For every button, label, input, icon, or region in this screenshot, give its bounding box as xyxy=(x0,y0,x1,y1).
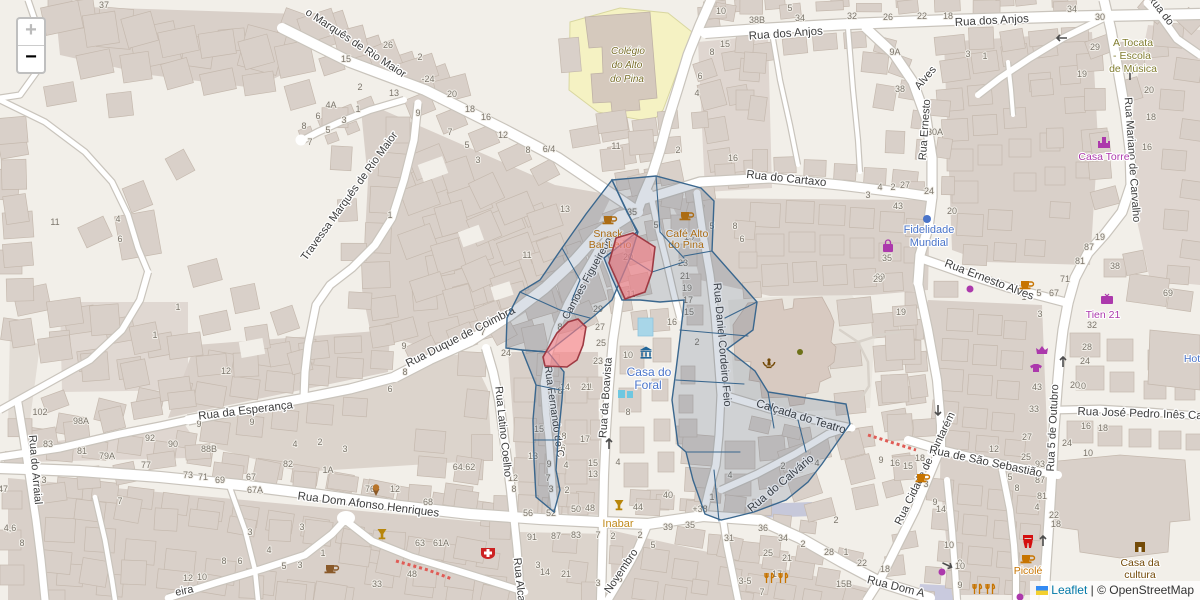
svg-text:19: 19 xyxy=(896,307,906,317)
svg-text:1: 1 xyxy=(320,548,325,558)
svg-text:25: 25 xyxy=(763,548,773,558)
svg-text:- Escola: - Escola xyxy=(1113,50,1151,62)
svg-text:Picolé: Picolé xyxy=(1014,565,1043,577)
svg-text:29: 29 xyxy=(873,274,883,284)
svg-text:6: 6 xyxy=(315,111,320,121)
svg-text:25: 25 xyxy=(596,338,606,348)
svg-text:34: 34 xyxy=(778,533,788,543)
svg-text:10: 10 xyxy=(1083,448,1093,458)
svg-text:20: 20 xyxy=(1070,380,1080,390)
svg-text:83: 83 xyxy=(571,530,581,540)
svg-text:3-5: 3-5 xyxy=(738,576,751,586)
svg-text:28: 28 xyxy=(824,547,834,557)
svg-text:38: 38 xyxy=(1110,261,1120,271)
svg-text:3: 3 xyxy=(342,444,347,454)
svg-text:4: 4 xyxy=(694,88,699,98)
svg-text:18: 18 xyxy=(1146,112,1156,122)
svg-text:4: 4 xyxy=(292,439,297,449)
svg-text:43: 43 xyxy=(1032,382,1042,392)
svg-text:Casa da: Casa da xyxy=(1120,557,1159,569)
svg-text:6: 6 xyxy=(697,71,702,81)
svg-text:25: 25 xyxy=(1021,452,1031,462)
svg-text:do Alto: do Alto xyxy=(612,60,643,71)
svg-text:6: 6 xyxy=(387,384,392,394)
svg-text:28: 28 xyxy=(1082,342,1092,352)
svg-text:13: 13 xyxy=(560,204,570,214)
svg-text:38: 38 xyxy=(895,84,905,94)
svg-text:7: 7 xyxy=(307,137,312,147)
svg-text:48: 48 xyxy=(585,503,595,513)
svg-text:8: 8 xyxy=(625,407,630,417)
svg-text:83: 83 xyxy=(43,439,53,449)
svg-text:27: 27 xyxy=(900,180,910,190)
svg-text:Casa do: Casa do xyxy=(627,365,672,379)
svg-text:3: 3 xyxy=(247,527,252,537)
svg-text:4: 4 xyxy=(1034,502,1039,512)
svg-text:81: 81 xyxy=(1037,491,1047,501)
svg-text:10: 10 xyxy=(716,6,726,16)
svg-text:88B: 88B xyxy=(201,444,217,454)
svg-text:20: 20 xyxy=(1144,85,1154,95)
svg-text:15: 15 xyxy=(903,461,913,471)
svg-text:21: 21 xyxy=(581,382,591,392)
svg-text:8: 8 xyxy=(511,484,516,494)
svg-text:12: 12 xyxy=(498,130,508,140)
svg-text:87: 87 xyxy=(1084,242,1094,252)
svg-text:16: 16 xyxy=(1081,421,1091,431)
svg-text:Fidelidade: Fidelidade xyxy=(904,224,955,236)
svg-text:27: 27 xyxy=(595,322,605,332)
svg-text:9A: 9A xyxy=(889,47,900,57)
svg-text:4: 4 xyxy=(877,182,882,192)
svg-text:1: 1 xyxy=(387,210,392,220)
svg-text:11: 11 xyxy=(611,141,620,151)
svg-text:29: 29 xyxy=(1090,42,1100,52)
svg-text:5: 5 xyxy=(464,140,469,150)
svg-text:Inabar: Inabar xyxy=(602,518,634,530)
svg-text:8: 8 xyxy=(525,145,530,155)
svg-text:47: 47 xyxy=(0,484,8,494)
svg-text:11: 11 xyxy=(522,250,531,260)
svg-text:81: 81 xyxy=(77,446,87,456)
svg-text:18: 18 xyxy=(1098,423,1108,433)
svg-text:18: 18 xyxy=(943,11,953,21)
svg-text:64.62: 64.62 xyxy=(453,462,476,472)
svg-text:20: 20 xyxy=(447,89,457,99)
svg-text:39: 39 xyxy=(663,522,673,532)
svg-text:69: 69 xyxy=(1163,288,1173,298)
svg-text:Foral: Foral xyxy=(634,378,661,392)
svg-text:9: 9 xyxy=(957,580,962,590)
svg-text:18: 18 xyxy=(880,564,890,574)
svg-text:3: 3 xyxy=(1037,309,1042,319)
svg-text:6: 6 xyxy=(237,556,242,566)
svg-text:do Pina: do Pina xyxy=(610,74,644,85)
svg-text:44: 44 xyxy=(633,502,643,512)
svg-text:9: 9 xyxy=(249,417,254,427)
svg-text:50: 50 xyxy=(571,504,581,514)
svg-text:10: 10 xyxy=(944,540,954,550)
svg-text:4A: 4A xyxy=(325,100,336,110)
svg-text:15: 15 xyxy=(341,54,351,64)
svg-text:71: 71 xyxy=(198,472,208,482)
svg-text:Mundial: Mundial xyxy=(910,237,949,249)
svg-text:20: 20 xyxy=(947,206,957,216)
svg-text:6: 6 xyxy=(117,234,122,244)
svg-text:35: 35 xyxy=(685,520,695,530)
svg-text:10: 10 xyxy=(623,350,633,360)
svg-text:2: 2 xyxy=(317,437,322,447)
svg-text:67A: 67A xyxy=(247,485,263,495)
svg-text:32: 32 xyxy=(847,11,857,21)
svg-text:91: 91 xyxy=(527,532,537,542)
svg-text:1A: 1A xyxy=(322,465,333,475)
svg-text:9: 9 xyxy=(401,341,406,351)
svg-text:A Tocata: A Tocata xyxy=(1113,37,1153,49)
svg-text:32: 32 xyxy=(1087,320,1097,330)
svg-text:90: 90 xyxy=(168,439,178,449)
svg-text:8: 8 xyxy=(1014,483,1019,493)
svg-text:24: 24 xyxy=(924,186,934,196)
svg-text:cultura: cultura xyxy=(1124,569,1156,581)
svg-text:26: 26 xyxy=(383,40,393,50)
svg-text:21: 21 xyxy=(782,553,792,563)
svg-text:34: 34 xyxy=(1067,4,1077,14)
svg-text:3: 3 xyxy=(865,190,870,200)
svg-text:3: 3 xyxy=(595,578,600,588)
svg-text:4: 4 xyxy=(563,460,568,470)
svg-text:2: 2 xyxy=(890,182,895,192)
svg-text:19: 19 xyxy=(1077,69,1087,79)
svg-text:38B: 38B xyxy=(749,15,765,25)
svg-text:3: 3 xyxy=(475,155,480,165)
svg-text:Hot: Hot xyxy=(1184,353,1200,365)
svg-text:16: 16 xyxy=(1142,142,1152,152)
svg-text:9: 9 xyxy=(878,455,883,465)
svg-text:7: 7 xyxy=(759,587,764,597)
svg-text:3: 3 xyxy=(341,115,346,125)
svg-text:15: 15 xyxy=(720,39,730,49)
svg-text:13: 13 xyxy=(389,88,399,98)
svg-text:35: 35 xyxy=(882,253,892,263)
svg-text:Casa Torre: Casa Torre xyxy=(1078,151,1129,163)
svg-text:36: 36 xyxy=(758,523,768,533)
svg-text:13: 13 xyxy=(588,469,598,479)
svg-text:12: 12 xyxy=(183,573,193,583)
svg-text:5: 5 xyxy=(281,561,286,571)
svg-text:2: 2 xyxy=(357,82,362,92)
svg-text:22: 22 xyxy=(917,11,927,21)
svg-text:81: 81 xyxy=(1075,256,1085,266)
svg-text:7: 7 xyxy=(117,496,122,506)
svg-text:1: 1 xyxy=(355,104,360,114)
svg-text:17: 17 xyxy=(580,434,590,444)
svg-text:14: 14 xyxy=(936,504,946,514)
svg-text:5: 5 xyxy=(787,3,792,13)
svg-text:12: 12 xyxy=(390,484,400,494)
svg-text:69: 69 xyxy=(215,475,225,485)
svg-text:15: 15 xyxy=(588,458,598,468)
svg-text:16: 16 xyxy=(728,153,738,163)
svg-text:2: 2 xyxy=(417,52,422,62)
svg-text:31: 31 xyxy=(724,533,734,543)
svg-text:12: 12 xyxy=(989,444,999,454)
svg-text:7: 7 xyxy=(595,530,600,540)
svg-text:5: 5 xyxy=(650,540,655,550)
svg-text:63: 63 xyxy=(415,538,425,548)
svg-text:92: 92 xyxy=(145,433,155,443)
svg-text:9: 9 xyxy=(415,108,420,118)
svg-text:7: 7 xyxy=(447,127,452,137)
svg-text:8: 8 xyxy=(732,221,737,231)
svg-text:21: 21 xyxy=(561,569,571,579)
svg-text:33: 33 xyxy=(1029,404,1039,414)
svg-text:2: 2 xyxy=(564,485,569,495)
svg-text:2: 2 xyxy=(610,531,615,541)
svg-text:61A: 61A xyxy=(433,538,449,548)
svg-text:102: 102 xyxy=(32,407,47,417)
svg-text:33: 33 xyxy=(372,579,382,589)
svg-text:43: 43 xyxy=(893,201,903,211)
svg-text:71: 71 xyxy=(1060,274,1070,284)
svg-text:67: 67 xyxy=(1049,288,1059,298)
svg-text:1: 1 xyxy=(843,547,848,557)
svg-text:4: 4 xyxy=(266,545,271,555)
svg-text:79A: 79A xyxy=(99,451,115,461)
svg-text:87: 87 xyxy=(551,531,561,541)
svg-text:37: 37 xyxy=(99,0,109,10)
svg-text:-24: -24 xyxy=(421,74,434,84)
svg-text:16: 16 xyxy=(667,317,677,327)
svg-text:18: 18 xyxy=(465,104,475,114)
svg-text:1: 1 xyxy=(982,51,987,61)
svg-text:18: 18 xyxy=(1051,519,1061,529)
svg-text:12: 12 xyxy=(221,366,231,376)
svg-text:Tien 21: Tien 21 xyxy=(1086,309,1121,321)
svg-text:15B: 15B xyxy=(836,579,852,589)
svg-text:34: 34 xyxy=(795,13,805,23)
svg-text:10: 10 xyxy=(955,561,965,571)
svg-text:22: 22 xyxy=(857,558,867,568)
svg-text:6/4: 6/4 xyxy=(543,144,556,154)
svg-text:98A: 98A xyxy=(73,416,89,426)
svg-text:10: 10 xyxy=(197,572,207,582)
svg-text:24: 24 xyxy=(501,348,511,358)
svg-text:48: 48 xyxy=(407,569,417,579)
svg-text:16: 16 xyxy=(481,112,491,122)
svg-text:8: 8 xyxy=(301,121,306,131)
svg-text:2: 2 xyxy=(675,145,680,155)
svg-text:5: 5 xyxy=(325,125,330,135)
svg-text:3: 3 xyxy=(965,49,970,59)
svg-text:2: 2 xyxy=(833,515,838,525)
svg-text:11: 11 xyxy=(50,217,59,227)
svg-text:6: 6 xyxy=(739,234,744,244)
svg-text:1: 1 xyxy=(175,302,180,312)
svg-text:56: 56 xyxy=(523,508,533,518)
svg-text:8: 8 xyxy=(402,367,407,377)
svg-text:82: 82 xyxy=(283,459,293,469)
svg-text:2: 2 xyxy=(800,539,805,549)
svg-text:5: 5 xyxy=(1036,288,1041,298)
svg-text:3: 3 xyxy=(299,522,304,532)
svg-text:8: 8 xyxy=(19,538,24,548)
svg-text:30: 30 xyxy=(1095,12,1105,22)
svg-text:14: 14 xyxy=(540,567,550,577)
svg-text:3: 3 xyxy=(297,560,302,570)
svg-text:Colégio: Colégio xyxy=(611,46,645,57)
svg-text:24: 24 xyxy=(1080,356,1090,366)
svg-text:4: 4 xyxy=(615,457,620,467)
svg-text:2: 2 xyxy=(637,530,642,540)
svg-text:8: 8 xyxy=(709,47,714,57)
svg-text:73: 73 xyxy=(183,470,193,480)
svg-text:19: 19 xyxy=(1095,232,1105,242)
svg-text:40: 40 xyxy=(663,490,673,500)
svg-text:de Música: de Música xyxy=(1109,63,1157,75)
svg-text:26: 26 xyxy=(883,12,893,22)
svg-text:1: 1 xyxy=(152,330,157,340)
svg-text:8: 8 xyxy=(221,556,226,566)
svg-text:4,6: 4,6 xyxy=(4,523,17,533)
svg-text:27: 27 xyxy=(1022,432,1032,442)
svg-text:24: 24 xyxy=(1062,438,1072,448)
svg-text:16: 16 xyxy=(890,458,900,468)
svg-text:4: 4 xyxy=(115,214,120,224)
svg-text:67: 67 xyxy=(246,472,256,482)
svg-text:77: 77 xyxy=(141,460,151,470)
